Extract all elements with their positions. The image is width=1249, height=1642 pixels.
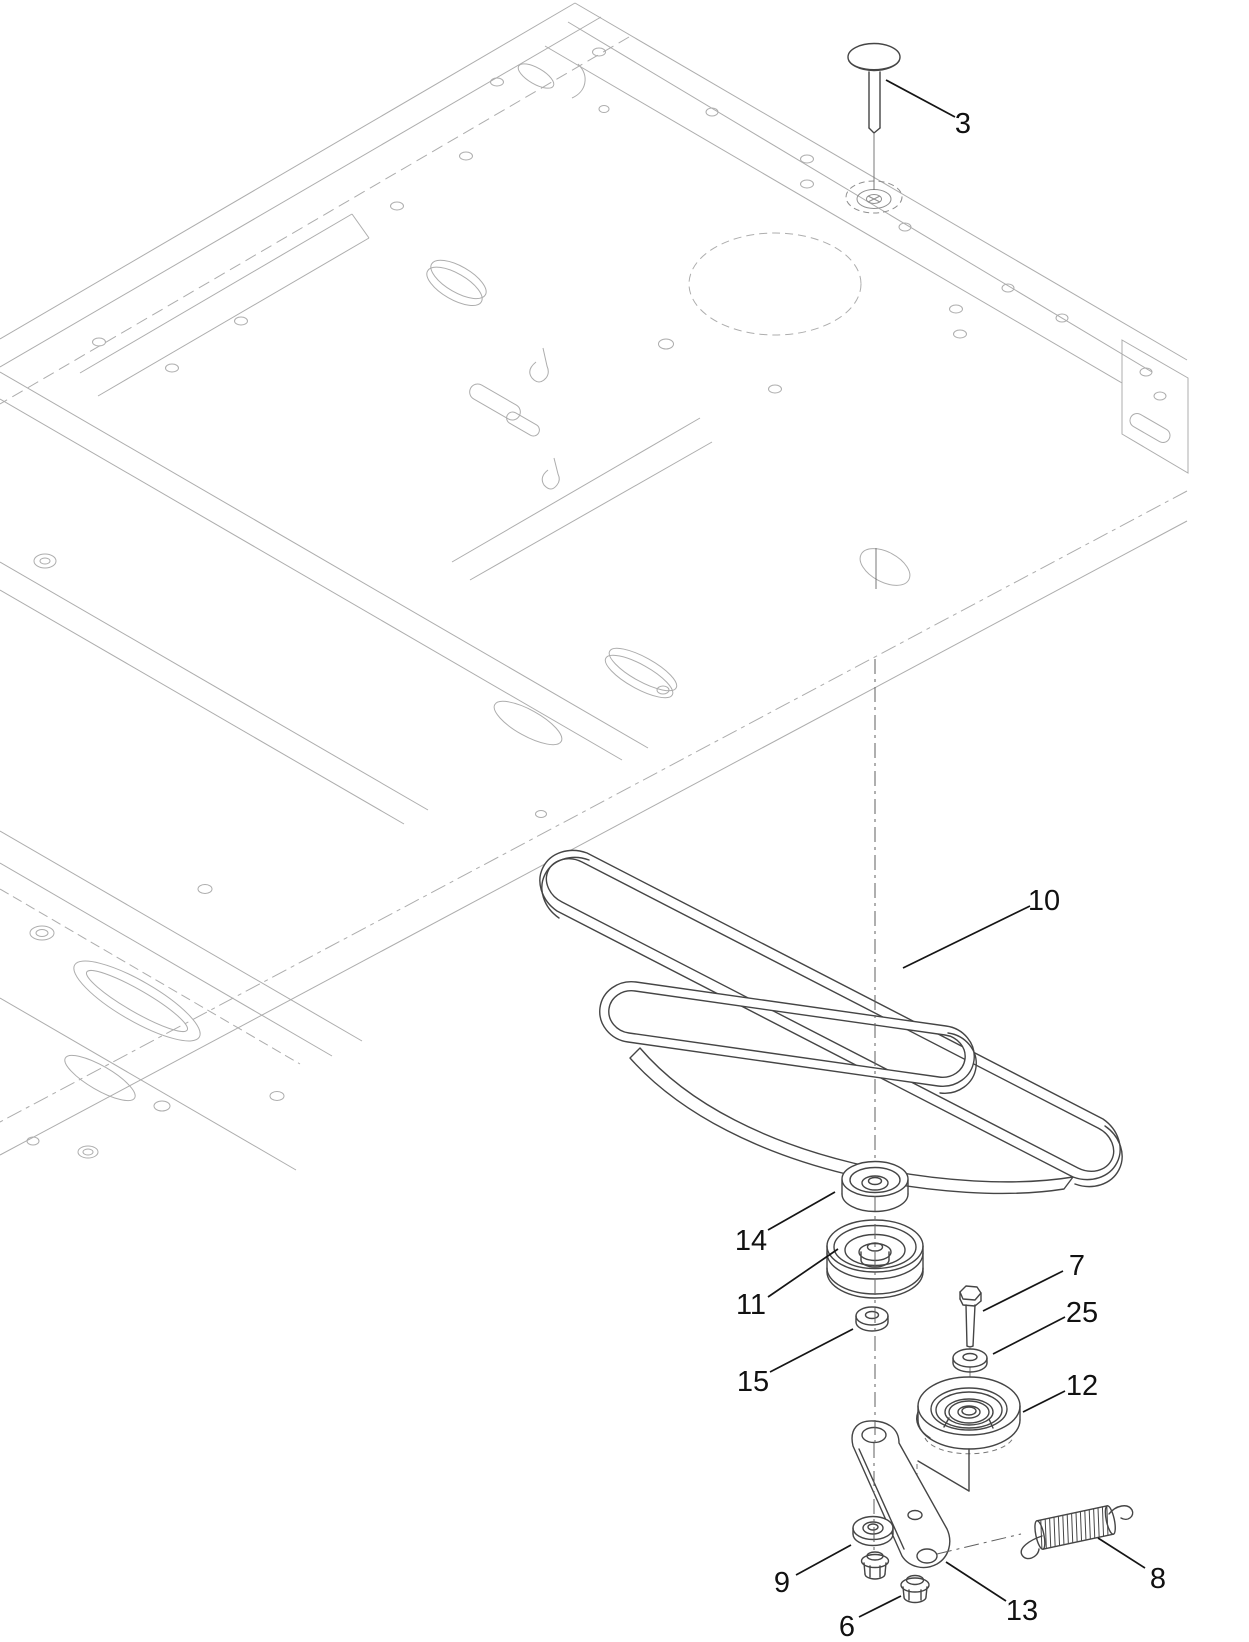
callout-carriage-bolt: 3 [955,108,971,140]
leader-line-idler-arm [946,1562,1006,1601]
deck-frame [0,3,1188,1170]
callout-extension-spring: 8 [1150,1563,1166,1595]
extension-spring [1021,1505,1132,1559]
callout-idler-arm: 13 [1006,1595,1038,1627]
leader-line-washer-15 [770,1329,853,1372]
leader-line-v-belt [903,906,1030,968]
leader-line-hex-bolt [983,1271,1063,1311]
washer-15 [856,1307,888,1331]
diagram-canvas: 3101411157251296138 [0,0,1249,1642]
washer-9 [853,1517,893,1580]
leader-line-flat-idler-pulley [1023,1391,1065,1412]
leader-line-extension-spring [1098,1538,1145,1568]
carriage-bolt [848,44,900,191]
callout-flat-idler-pulley: 12 [1066,1370,1098,1402]
parts-diagram-page: 3101411157251296138 [0,0,1249,1642]
callout-hex-bolt: 7 [1069,1250,1085,1282]
callout-flange-nut: 6 [839,1611,855,1642]
leader-line-washer-25 [993,1317,1065,1354]
callout-v-idler-pulley: 11 [736,1289,766,1321]
callout-v-belt: 10 [1028,885,1060,917]
leader-line-flange-nut [859,1596,901,1617]
flat-idler-pulley [917,1377,1020,1509]
leader-line-carriage-bolt [886,80,955,117]
callout-spacer: 14 [735,1225,767,1257]
flange-nut [901,1576,929,1603]
leader-line-washer-9 [796,1545,851,1575]
callout-washer-15: 15 [737,1366,769,1398]
callout-washer-25: 25 [1066,1297,1098,1329]
callout-washer-9: 9 [774,1567,790,1599]
leader-line-spacer [768,1192,835,1230]
